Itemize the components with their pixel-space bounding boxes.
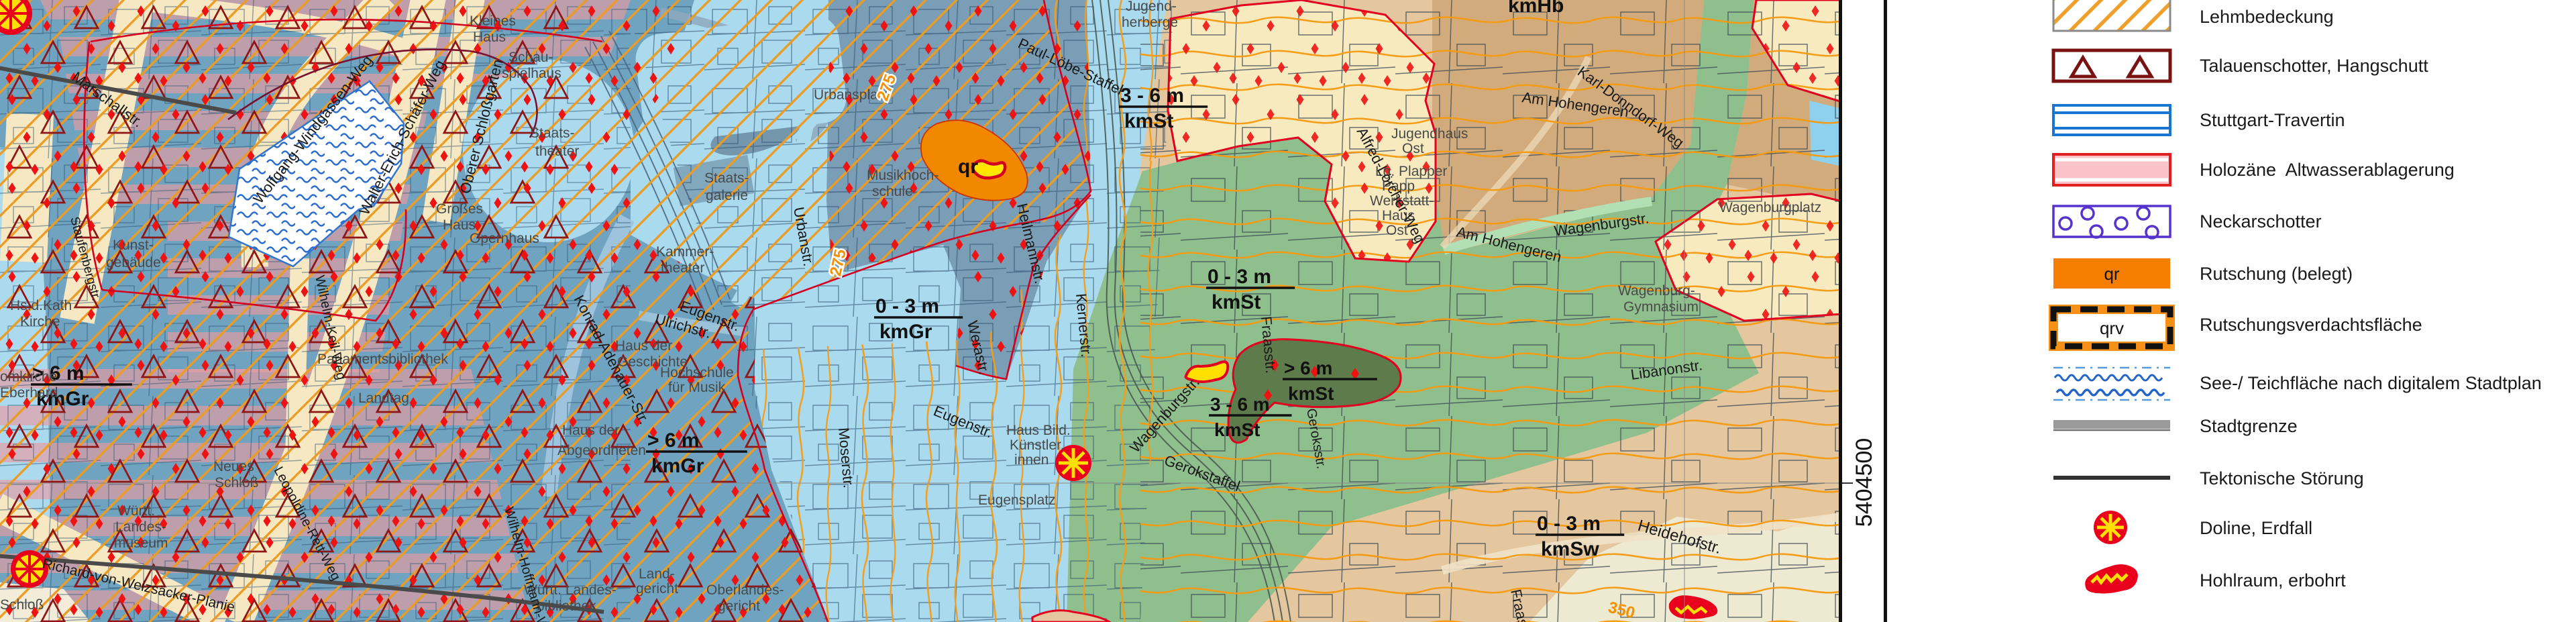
svg-text:kmSw: kmSw [1541,538,1599,560]
svg-text:Eberhard: Eberhard [0,385,58,401]
svg-text:kmSt: kmSt [1212,291,1260,313]
svg-text:0 - 3 m: 0 - 3 m [875,295,939,317]
svg-text:Haus Bild.: Haus Bild. [1006,423,1071,438]
svg-text:Rutschungsverdachtsfläche: Rutschungsverdachtsfläche [2200,315,2422,335]
svg-text:theater: theater [661,260,704,276]
svg-text:Kammer-: Kammer- [656,244,714,260]
svg-text:Ost: Ost [1402,141,1424,156]
svg-text:Künstler.: Künstler. [1010,437,1065,453]
svg-text:Jugendhaus: Jugendhaus [1391,126,1468,142]
svg-text:Haus: Haus [473,30,506,45]
svg-text:Doline, Erdfall: Doline, Erdfall [2200,518,2312,538]
svg-text:Landtag: Landtag [358,391,409,406]
svg-text:kmGr: kmGr [879,321,932,343]
svg-text:Rutschung (belegt): Rutschung (belegt) [2200,264,2353,284]
svg-text:Landes-: Landes- [115,519,166,535]
svg-text:Talauenschotter, Hangschutt: Talauenschotter, Hangschutt [2200,56,2428,76]
svg-text:omkirche: omkirche [0,369,57,384]
svg-text:Musikhoch-: Musikhoch- [867,168,938,183]
svg-text:Opernhaus: Opernhaus [470,231,539,246]
svg-text:Staats-: Staats- [704,170,749,186]
svg-text:Haus der: Haus der [615,338,672,354]
svg-text:Stuttgart-Travertin: Stuttgart-Travertin [2200,110,2345,130]
svg-text:Hs.d.Kath: Hs.d.Kath [10,298,72,313]
svg-text:Lehmbedeckung: Lehmbedeckung [2200,7,2334,27]
svg-text:Tektonische Störung: Tektonische Störung [2200,468,2364,488]
svg-text:Kleines: Kleines [470,13,516,29]
svg-text:Württ.: Württ. [117,503,155,519]
svg-text:kmGr: kmGr [651,455,704,477]
svg-text:kmHb: kmHb [1508,0,1564,17]
svg-text:> 6 m: > 6 m [647,429,700,452]
svg-text:3 - 6 m: 3 - 6 m [1210,394,1270,415]
svg-text:Kirche: Kirche [20,314,60,329]
svg-text:Jugend-: Jugend- [1126,0,1177,14]
svg-text:Neckarschotter: Neckarschotter [2200,211,2322,231]
svg-text:herberge: herberge [1122,15,1178,30]
svg-text:Kunst-: Kunst- [113,238,154,253]
svg-text:> 6 m: > 6 m [1284,358,1332,378]
svg-text:0 - 3 m: 0 - 3 m [1537,513,1601,535]
svg-text:Schloß: Schloß [215,475,258,490]
svg-text:gebäude: gebäude [106,255,161,270]
svg-text:See-/ Teichfläche nach digital: See-/ Teichfläche nach digitalem Stadtpl… [2200,373,2542,393]
svg-text:kmSt: kmSt [1124,110,1173,132]
svg-text:gericht: gericht [718,599,760,614]
svg-text:Gymnasium: Gymnasium [1623,299,1699,315]
svg-text:Haus: Haus [443,217,476,233]
svg-text:Schloß: Schloß [0,597,44,613]
svg-text:Abgeordneten: Abgeordneten [557,443,646,458]
svg-text:Land-: Land- [639,566,675,582]
svg-text:Staats-: Staats- [530,125,575,141]
svg-text:qr: qr [958,156,978,178]
svg-text:galerie: galerie [706,188,748,203]
svg-text:spielhaus: spielhaus [502,66,561,81]
svg-text:museum: museum [114,535,168,551]
svg-text:Stadtgrenze: Stadtgrenze [2200,416,2298,436]
svg-text:Wagenburgplatz: Wagenburgplatz [1719,200,1821,215]
svg-text:3 - 6 m: 3 - 6 m [1120,85,1184,107]
svg-text:innen: innen [1014,452,1049,468]
svg-text:für Musik: für Musik [668,380,726,395]
svg-text:Neues: Neues [213,459,254,474]
svg-text:Großes: Großes [436,201,483,217]
svg-text:Holozäne Altwasserablagerung: Holozäne Altwasserablagerung [2200,160,2455,180]
svg-text:kmSt: kmSt [1214,419,1260,440]
svg-text:Hochschule: Hochschule [660,365,734,380]
svg-text:Wagenburg-: Wagenburg- [1618,283,1695,299]
svg-text:qrv: qrv [2100,318,2124,338]
svg-text:theater: theater [535,144,579,159]
svg-text:gericht: gericht [636,581,678,597]
svg-text:schule: schule [872,184,913,199]
svg-text:kmSt: kmSt [1288,383,1334,404]
svg-text:Haus der: Haus der [562,423,619,438]
svg-text:0 - 3 m: 0 - 3 m [1207,266,1271,288]
svg-text:Hohlraum, erbohrt: Hohlraum, erbohrt [2200,570,2346,590]
svg-text:qr: qr [2104,264,2119,284]
svg-text:Schau-: Schau- [508,50,553,65]
svg-text:5404500: 5404500 [1851,438,1877,527]
svg-text:Oberlandes-: Oberlandes- [706,582,784,598]
svg-text:Eugensplatz: Eugensplatz [978,493,1056,508]
